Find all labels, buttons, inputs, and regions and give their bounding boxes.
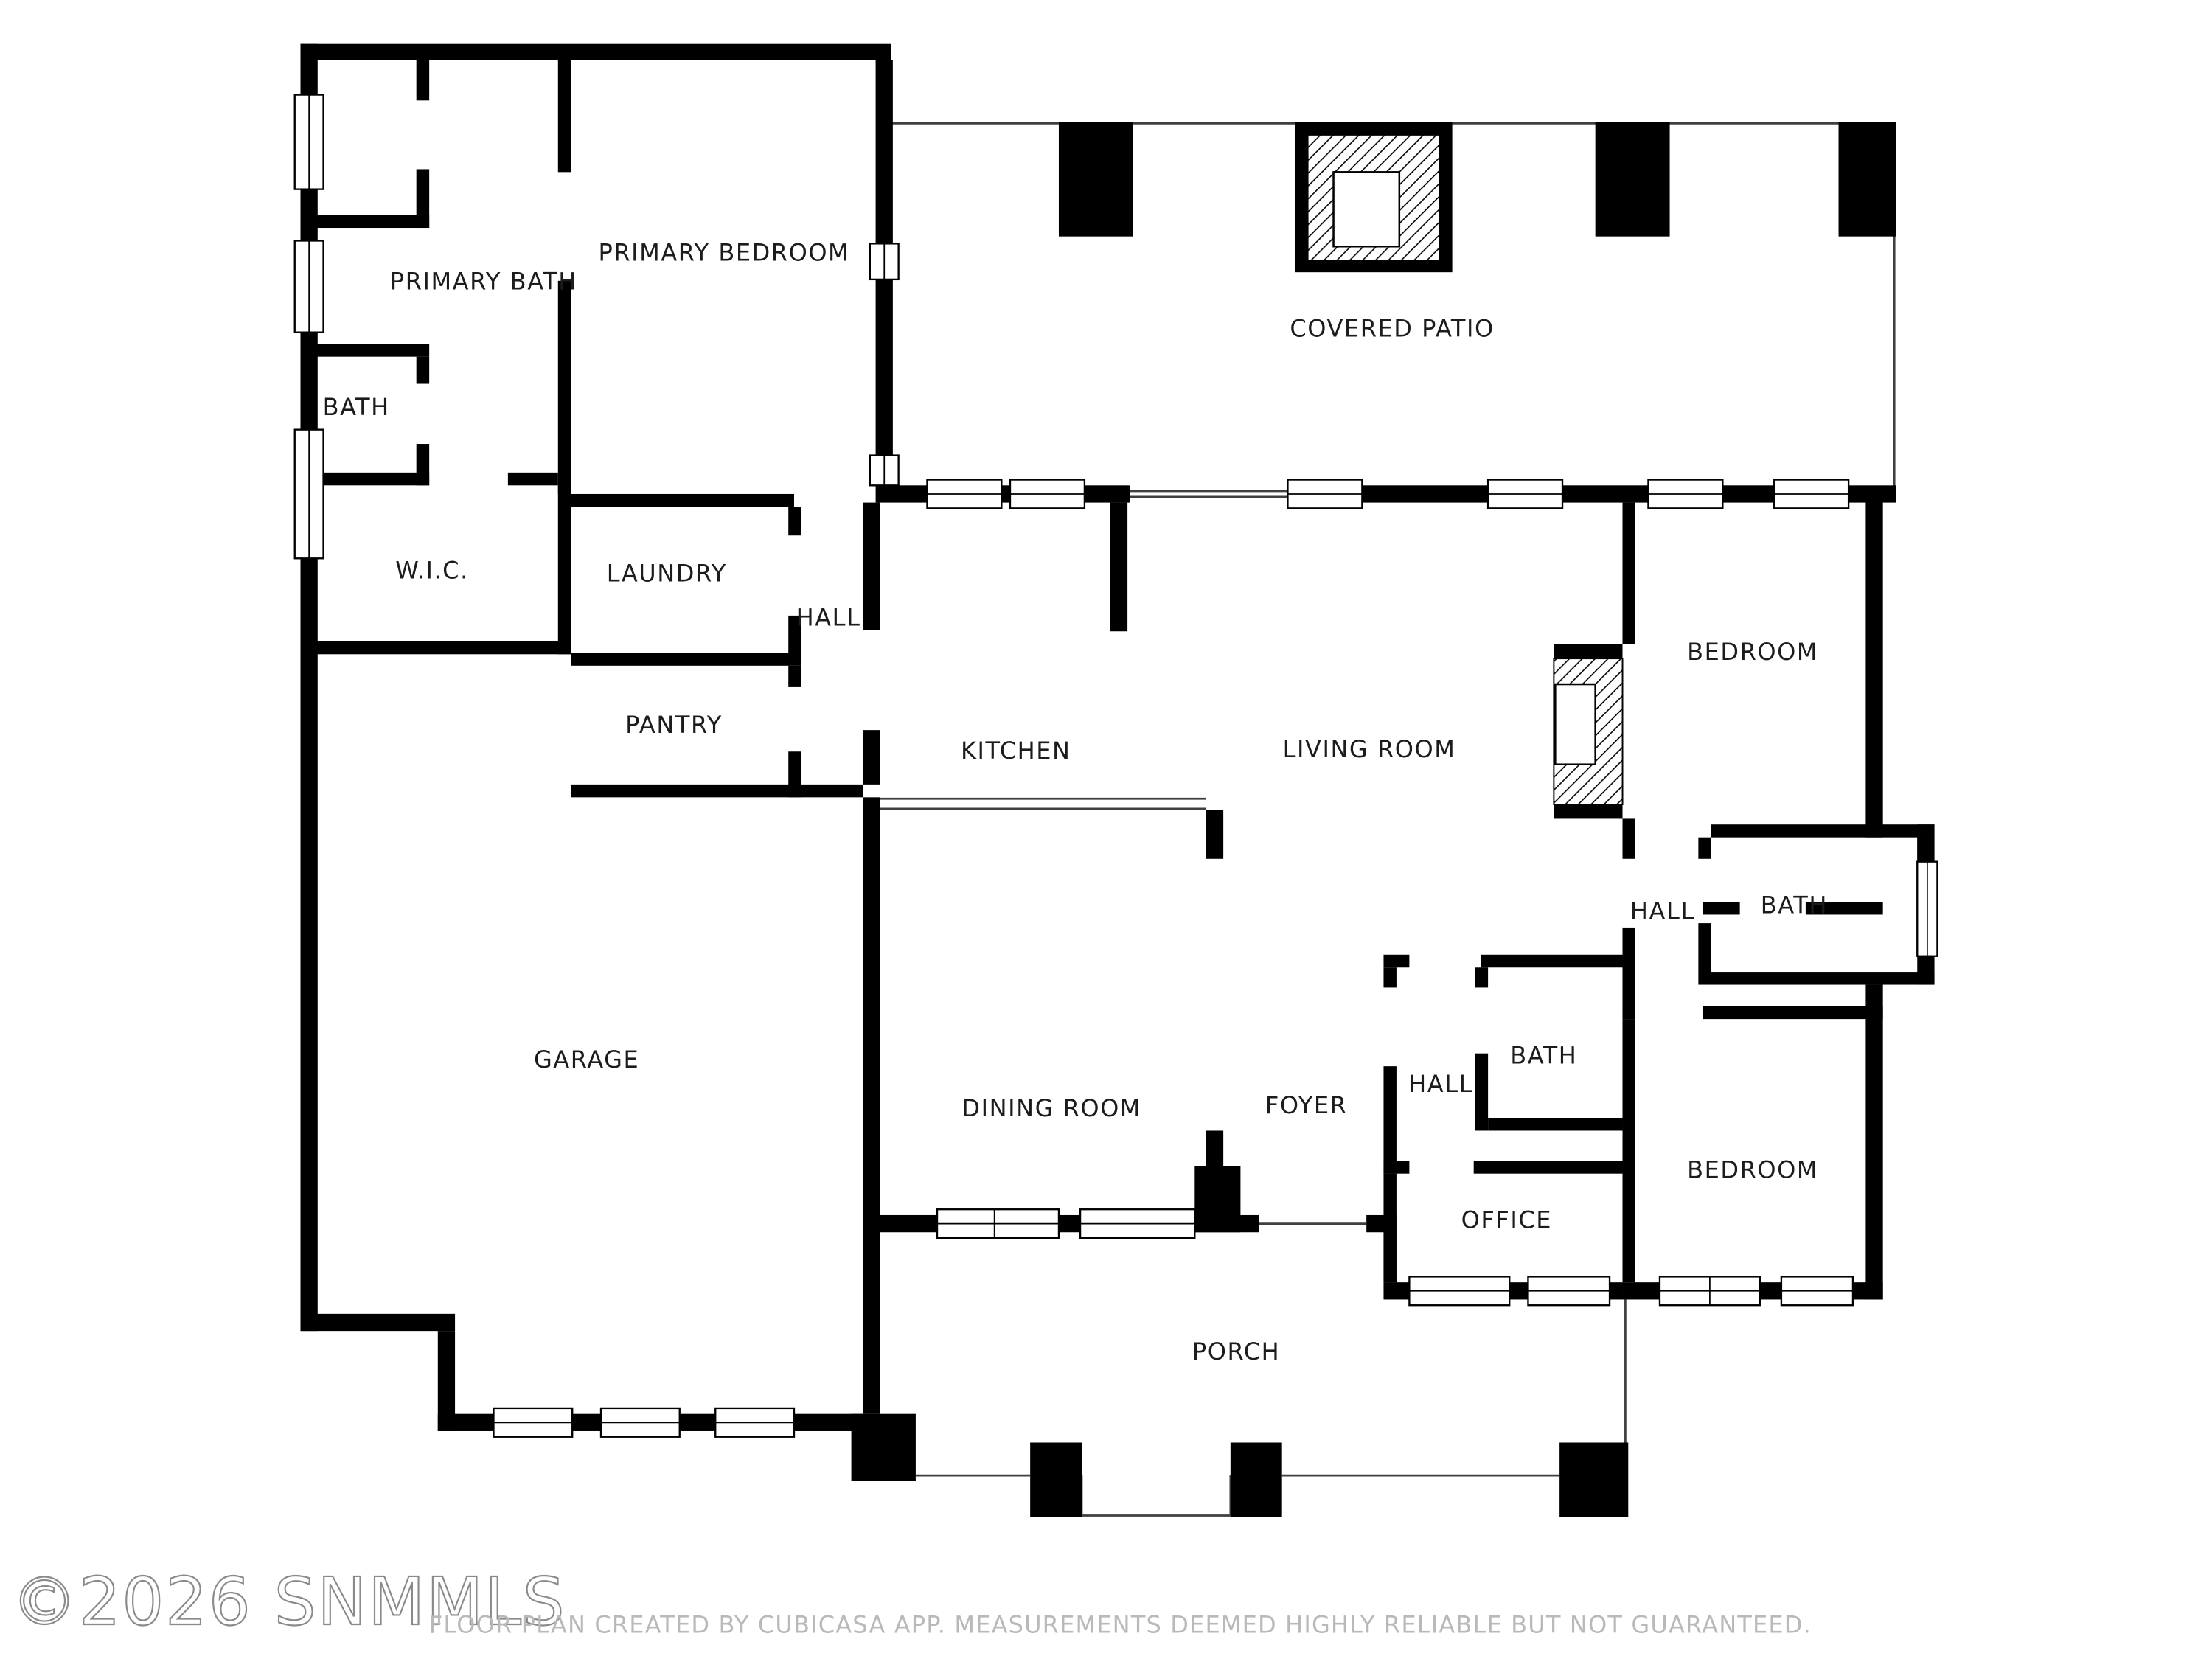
wall — [1509, 1282, 1528, 1299]
wall — [417, 60, 429, 100]
window — [295, 240, 324, 332]
wall — [1623, 818, 1635, 858]
wall — [1703, 1006, 1883, 1019]
wall — [1623, 928, 1635, 1019]
wall — [301, 44, 891, 60]
wall — [1488, 1118, 1622, 1130]
wall — [1001, 485, 1010, 502]
window — [1648, 480, 1722, 509]
wall — [1623, 1019, 1635, 1282]
room-label-bedroom-right: BEDROOM — [1687, 638, 1818, 666]
wall — [852, 1414, 916, 1481]
wall — [1383, 1161, 1409, 1173]
wall — [417, 169, 429, 228]
room-label-bath-suite: BATH — [323, 393, 390, 421]
room-label-garage: GARAGE — [534, 1046, 639, 1074]
wall — [1383, 1232, 1396, 1282]
wall — [1623, 1006, 1635, 1019]
wall — [1474, 1161, 1623, 1173]
wall — [301, 215, 430, 228]
floor-plan-canvas: PRIMARY BATH PRIMARY BEDROOM BATH W.I.C.… — [0, 0, 2212, 1659]
room-label-laundry: LAUNDRY — [607, 559, 727, 587]
wall — [301, 189, 318, 241]
porch-pillars — [1030, 1443, 1628, 1517]
room-label-pantry: PANTRY — [625, 711, 723, 739]
pillar — [1059, 122, 1133, 236]
room-label-dining-room: DINING ROOM — [961, 1094, 1141, 1122]
room-label-bath-center: BATH — [1510, 1041, 1577, 1069]
wall — [1110, 503, 1127, 632]
wall — [680, 1414, 716, 1431]
wall — [438, 1414, 494, 1431]
wall — [1085, 485, 1130, 502]
wall — [1481, 955, 1622, 967]
window — [1010, 480, 1085, 509]
room-label-kitchen: KITCHEN — [961, 737, 1071, 765]
wall — [1610, 1282, 1622, 1299]
window — [1528, 1276, 1610, 1305]
wall — [1865, 985, 1882, 1300]
wall — [508, 473, 558, 485]
window — [601, 1408, 680, 1437]
disclaimer-text: FLOOR PLAN CREATED BY CUBICASA APP. MEAS… — [429, 1611, 1812, 1639]
wall — [1711, 824, 1935, 837]
window — [1080, 1209, 1194, 1238]
wall — [1059, 1215, 1080, 1232]
window — [295, 95, 324, 189]
window — [937, 1209, 1059, 1238]
wall — [558, 60, 571, 172]
wall — [572, 1414, 601, 1431]
wall — [788, 666, 801, 687]
wall — [1722, 485, 1774, 502]
wall — [876, 485, 928, 502]
room-label-office: OFFICE — [1461, 1206, 1552, 1234]
wall — [788, 507, 801, 535]
window — [493, 1408, 572, 1437]
window — [870, 243, 899, 279]
wall — [1475, 967, 1488, 987]
wall — [863, 797, 880, 1413]
room-label-bedroom-bottom: BEDROOM — [1687, 1156, 1818, 1184]
room-label-hall-right: HALL — [1630, 897, 1695, 925]
window — [1488, 480, 1562, 509]
cased-opening-dining — [874, 799, 1206, 809]
window — [1287, 480, 1362, 509]
wall — [1711, 972, 1935, 984]
wall — [1853, 1282, 1883, 1299]
wall — [417, 357, 429, 384]
wall — [301, 641, 571, 654]
pillar — [1030, 1443, 1082, 1517]
pillar — [1559, 1443, 1628, 1517]
wall — [876, 279, 893, 456]
wall — [863, 503, 880, 630]
wall — [1623, 503, 1635, 644]
wall — [1623, 1282, 1660, 1299]
wall — [1698, 838, 1711, 859]
wall — [1383, 955, 1409, 967]
window — [715, 1408, 794, 1437]
room-label-foyer: FOYER — [1265, 1091, 1348, 1119]
wall — [1366, 1215, 1397, 1232]
wall — [558, 281, 571, 494]
room-label-bath-right: BATH — [1761, 891, 1828, 919]
room-label-wic: W.I.C. — [395, 556, 469, 584]
pillar — [1231, 1443, 1282, 1517]
living-room-fireplace-icon — [1554, 644, 1622, 819]
patio-fireplace-icon — [1295, 122, 1452, 272]
room-label-primary-bath: PRIMARY BATH — [390, 267, 577, 295]
window — [1409, 1276, 1509, 1305]
wall — [1383, 1066, 1396, 1174]
wall — [1760, 1282, 1781, 1299]
walls — [301, 44, 1935, 1481]
windows — [295, 95, 1938, 1437]
wall — [863, 730, 880, 785]
wall — [571, 494, 794, 507]
wall — [301, 44, 318, 95]
window — [1917, 862, 1937, 956]
wall — [301, 1314, 456, 1331]
wall — [1383, 1282, 1409, 1299]
wall — [558, 485, 571, 654]
wall — [571, 653, 801, 665]
wall — [1194, 1215, 1206, 1232]
wall — [801, 785, 863, 797]
wall — [1917, 838, 1934, 862]
wall — [874, 1215, 937, 1232]
floor-plan: PRIMARY BATH PRIMARY BEDROOM BATH W.I.C.… — [0, 0, 2212, 1659]
wall — [301, 558, 318, 1331]
wall — [571, 785, 801, 797]
pillar — [1839, 122, 1896, 236]
patio-sliding-door — [1130, 491, 1287, 497]
wall — [1917, 956, 1934, 985]
wall — [1562, 485, 1648, 502]
wall — [1475, 1054, 1488, 1131]
window — [1781, 1276, 1853, 1305]
room-label-hall-center: HALL — [1408, 1070, 1473, 1098]
wall — [1698, 923, 1711, 984]
wall — [1206, 810, 1223, 859]
wall — [1865, 494, 1882, 838]
window — [295, 430, 324, 559]
window — [927, 480, 1001, 509]
wall — [301, 344, 430, 356]
room-label-porch: PORCH — [1192, 1338, 1280, 1366]
room-label-covered-patio: COVERED PATIO — [1290, 315, 1494, 343]
room-label-living-room: LIVING ROOM — [1283, 735, 1456, 763]
wall — [1703, 902, 1739, 914]
room-label-primary-bedroom: PRIMARY BEDROOM — [599, 239, 850, 267]
window — [1660, 1276, 1760, 1305]
window — [870, 456, 899, 486]
patio-pillars — [1059, 122, 1896, 236]
wall — [1362, 485, 1488, 502]
wall — [1383, 967, 1396, 987]
window — [1774, 480, 1848, 509]
pillar — [1596, 122, 1670, 236]
room-label-hall-left: HALL — [796, 603, 861, 631]
wall — [876, 60, 893, 243]
